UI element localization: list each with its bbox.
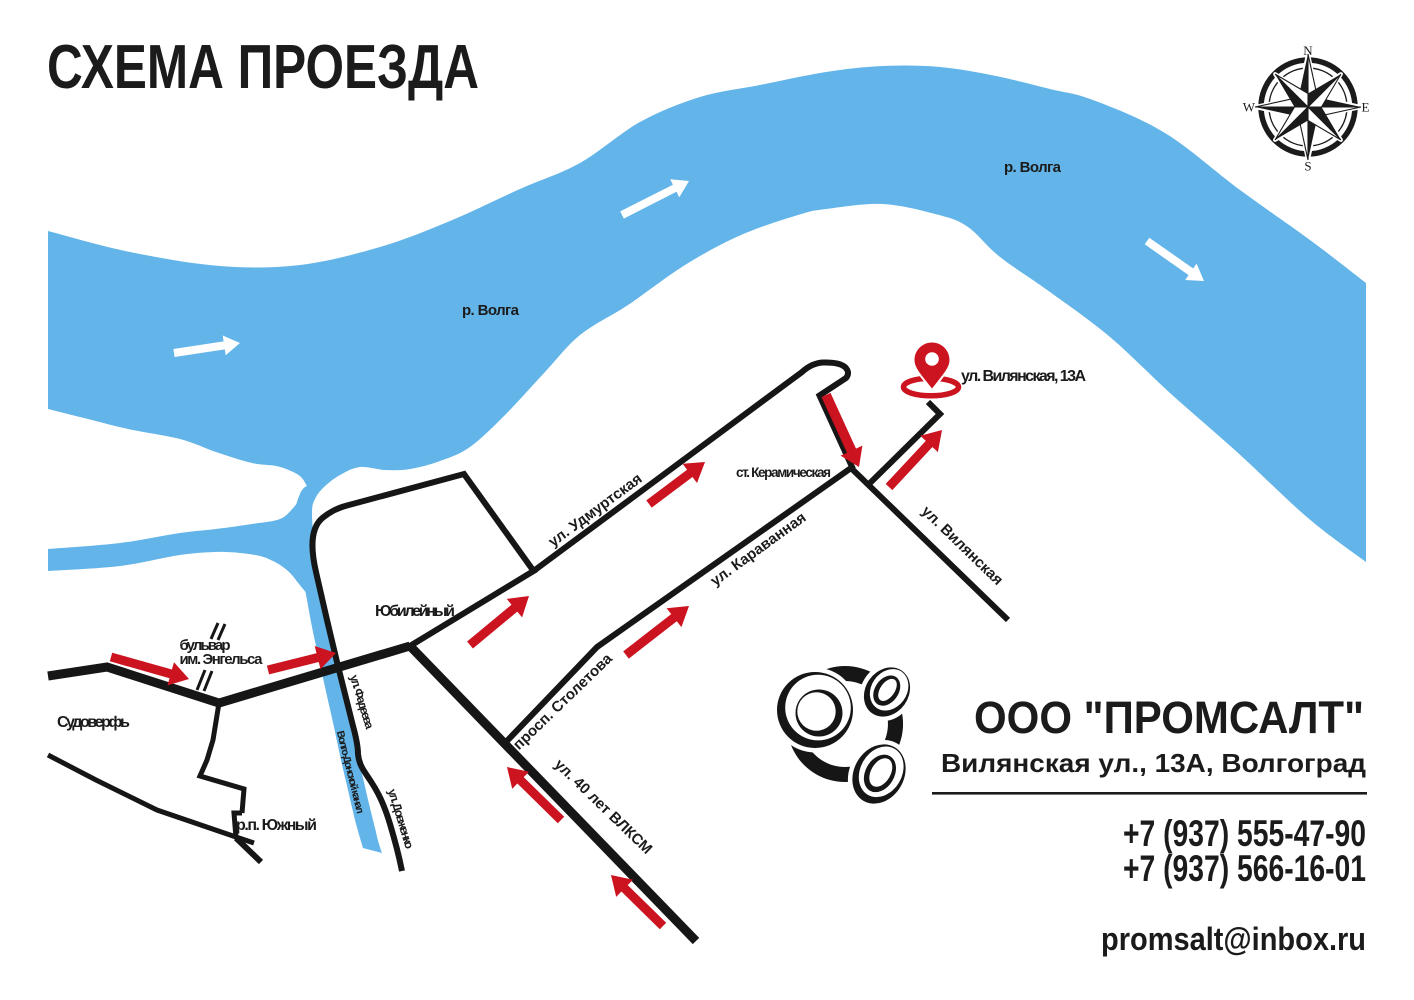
- svg-text:E: E: [1362, 100, 1370, 115]
- svg-text:promsalt@inbox.ru: promsalt@inbox.ru: [1101, 921, 1366, 957]
- svg-text:W: W: [1243, 100, 1256, 115]
- svg-text:Судоверфь: Судоверфь: [57, 714, 130, 731]
- svg-text:Юбилейный: Юбилейный: [375, 603, 455, 620]
- svg-text:+7 (937) 566-16-01: +7 (937) 566-16-01: [1123, 848, 1366, 889]
- svg-text:S: S: [1304, 159, 1311, 174]
- svg-text:ст. Керамическая: ст. Керамическая: [736, 465, 831, 480]
- svg-text:р. Волга: р. Волга: [462, 302, 520, 319]
- svg-text:Вилянская ул., 13А, Волгоград: Вилянская ул., 13А, Волгоград: [941, 748, 1367, 778]
- svg-text:ул. Вилянская, 13А: ул. Вилянская, 13А: [961, 368, 1086, 385]
- svg-text:им. Энгельса: им. Энгельса: [180, 651, 264, 668]
- svg-text:N: N: [1303, 43, 1313, 58]
- svg-text:СХЕМА ПРОЕЗДА: СХЕМА ПРОЕЗДА: [47, 33, 479, 102]
- svg-text:р.п. Южный: р.п. Южный: [236, 817, 317, 834]
- svg-text:р. Волга: р. Волга: [1004, 159, 1062, 176]
- svg-text:ООО "ПРОМСАЛТ": ООО "ПРОМСАЛТ": [974, 692, 1364, 743]
